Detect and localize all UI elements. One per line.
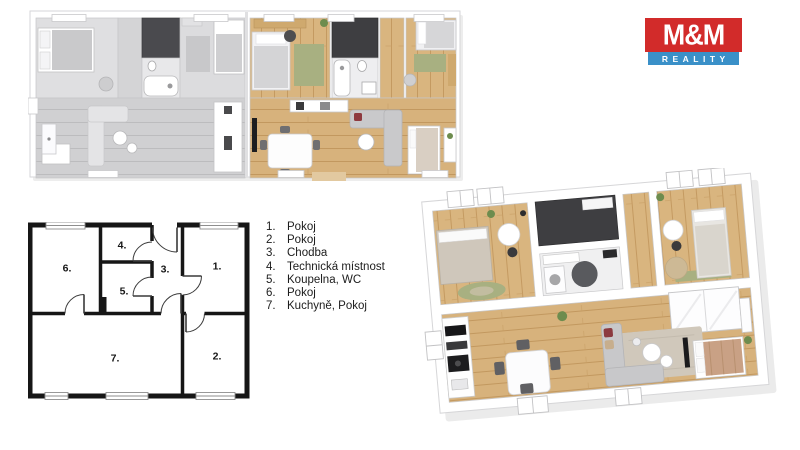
unit-right-colored — [250, 18, 456, 181]
unit-left-gray — [28, 18, 245, 178]
legend-item: 1.Pokoj — [266, 221, 385, 234]
perspective-render-3d — [382, 168, 800, 450]
logo-name: M&M — [663, 19, 724, 52]
floorplan-2d: 1. 2. 3. 4. 5. 6. 7. — [28, 222, 250, 402]
kitchen-counter — [290, 100, 348, 112]
legend-item: 3.Chodba — [266, 247, 385, 260]
sink — [362, 82, 376, 94]
bed — [38, 28, 94, 72]
pillow-tan — [604, 340, 614, 350]
armchair — [404, 74, 416, 86]
legend-item: 2.Pokoj — [266, 234, 385, 247]
tech-room-floor — [142, 18, 180, 58]
coffee-table — [358, 134, 374, 150]
bathtub — [144, 76, 178, 96]
rug — [186, 36, 210, 72]
wall-notch — [101, 297, 107, 314]
bed — [214, 20, 244, 74]
entry-canopy — [28, 98, 38, 114]
room-number-4: 4. — [118, 240, 127, 252]
armchair — [99, 77, 113, 91]
toilet — [148, 61, 156, 71]
room-number-3: 3. — [161, 264, 170, 276]
logo-blue-bar: REALITY — [648, 52, 739, 65]
floor-lamp — [632, 337, 641, 346]
green-rug — [294, 44, 324, 86]
plan-windows — [45, 222, 238, 400]
desk — [448, 54, 456, 86]
bed — [416, 20, 456, 50]
green-rug — [414, 54, 446, 72]
desk-chair — [284, 30, 296, 42]
legend-item: 7.Kuchyně, Pokoj — [266, 300, 385, 313]
tech-room-floor — [332, 18, 378, 58]
bed — [408, 126, 440, 174]
bed — [252, 32, 290, 90]
coffee-table — [127, 143, 137, 153]
toilet — [358, 61, 367, 72]
plan-walls — [28, 223, 250, 399]
logo-red-box: M&M — [645, 18, 742, 52]
page-canvas: { "logo": { "name": "M&M", "tagline": "R… — [0, 0, 800, 450]
coffee-table — [113, 131, 127, 145]
room-number-6: 6. — [63, 263, 72, 275]
legend-item: 4.Technická místnost — [266, 261, 385, 274]
tv-panel — [252, 118, 257, 152]
brand-logo: M&M REALITY — [645, 18, 742, 65]
dresser — [444, 128, 456, 162]
room-number-1: 1. — [213, 261, 222, 273]
legend-item: 5.Koupelna, WC — [266, 274, 385, 287]
wardrobe — [669, 287, 742, 335]
kitchen-counter — [214, 102, 242, 172]
top-render-3d — [28, 6, 464, 186]
legend-item: 6.Pokoj — [266, 287, 385, 300]
logo-tagline: REALITY — [657, 54, 729, 64]
bathtub — [334, 60, 350, 96]
entry-mat — [312, 172, 346, 181]
pillow-red — [603, 328, 613, 338]
room-number-7: 7. — [111, 353, 120, 365]
entry-door — [42, 124, 56, 154]
plant — [320, 19, 328, 27]
room-number-2: 2. — [213, 351, 222, 363]
legend: 1.Pokoj 2.Pokoj 3.Chodba 4.Technická mís… — [266, 221, 385, 313]
room-number-5: 5. — [120, 286, 129, 298]
